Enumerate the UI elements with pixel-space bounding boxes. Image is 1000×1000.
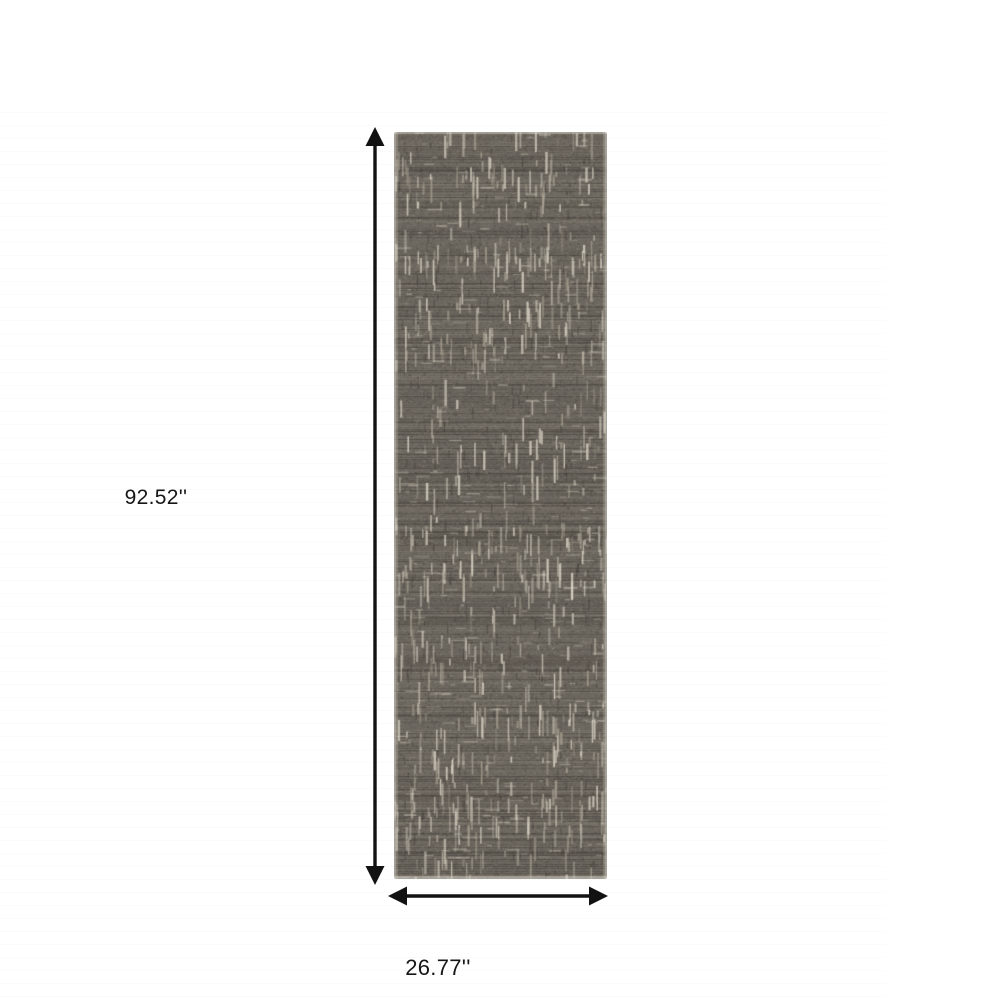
product-dimension-diagram: 92.52'' 26.77''	[0, 0, 1000, 1000]
height-dimension-arrow	[366, 127, 385, 885]
height-dimension-label: 92.52''	[110, 486, 202, 510]
rug-image	[394, 132, 607, 879]
width-dimension-arrow	[388, 887, 608, 906]
width-dimension-label: 26.77''	[392, 955, 484, 981]
